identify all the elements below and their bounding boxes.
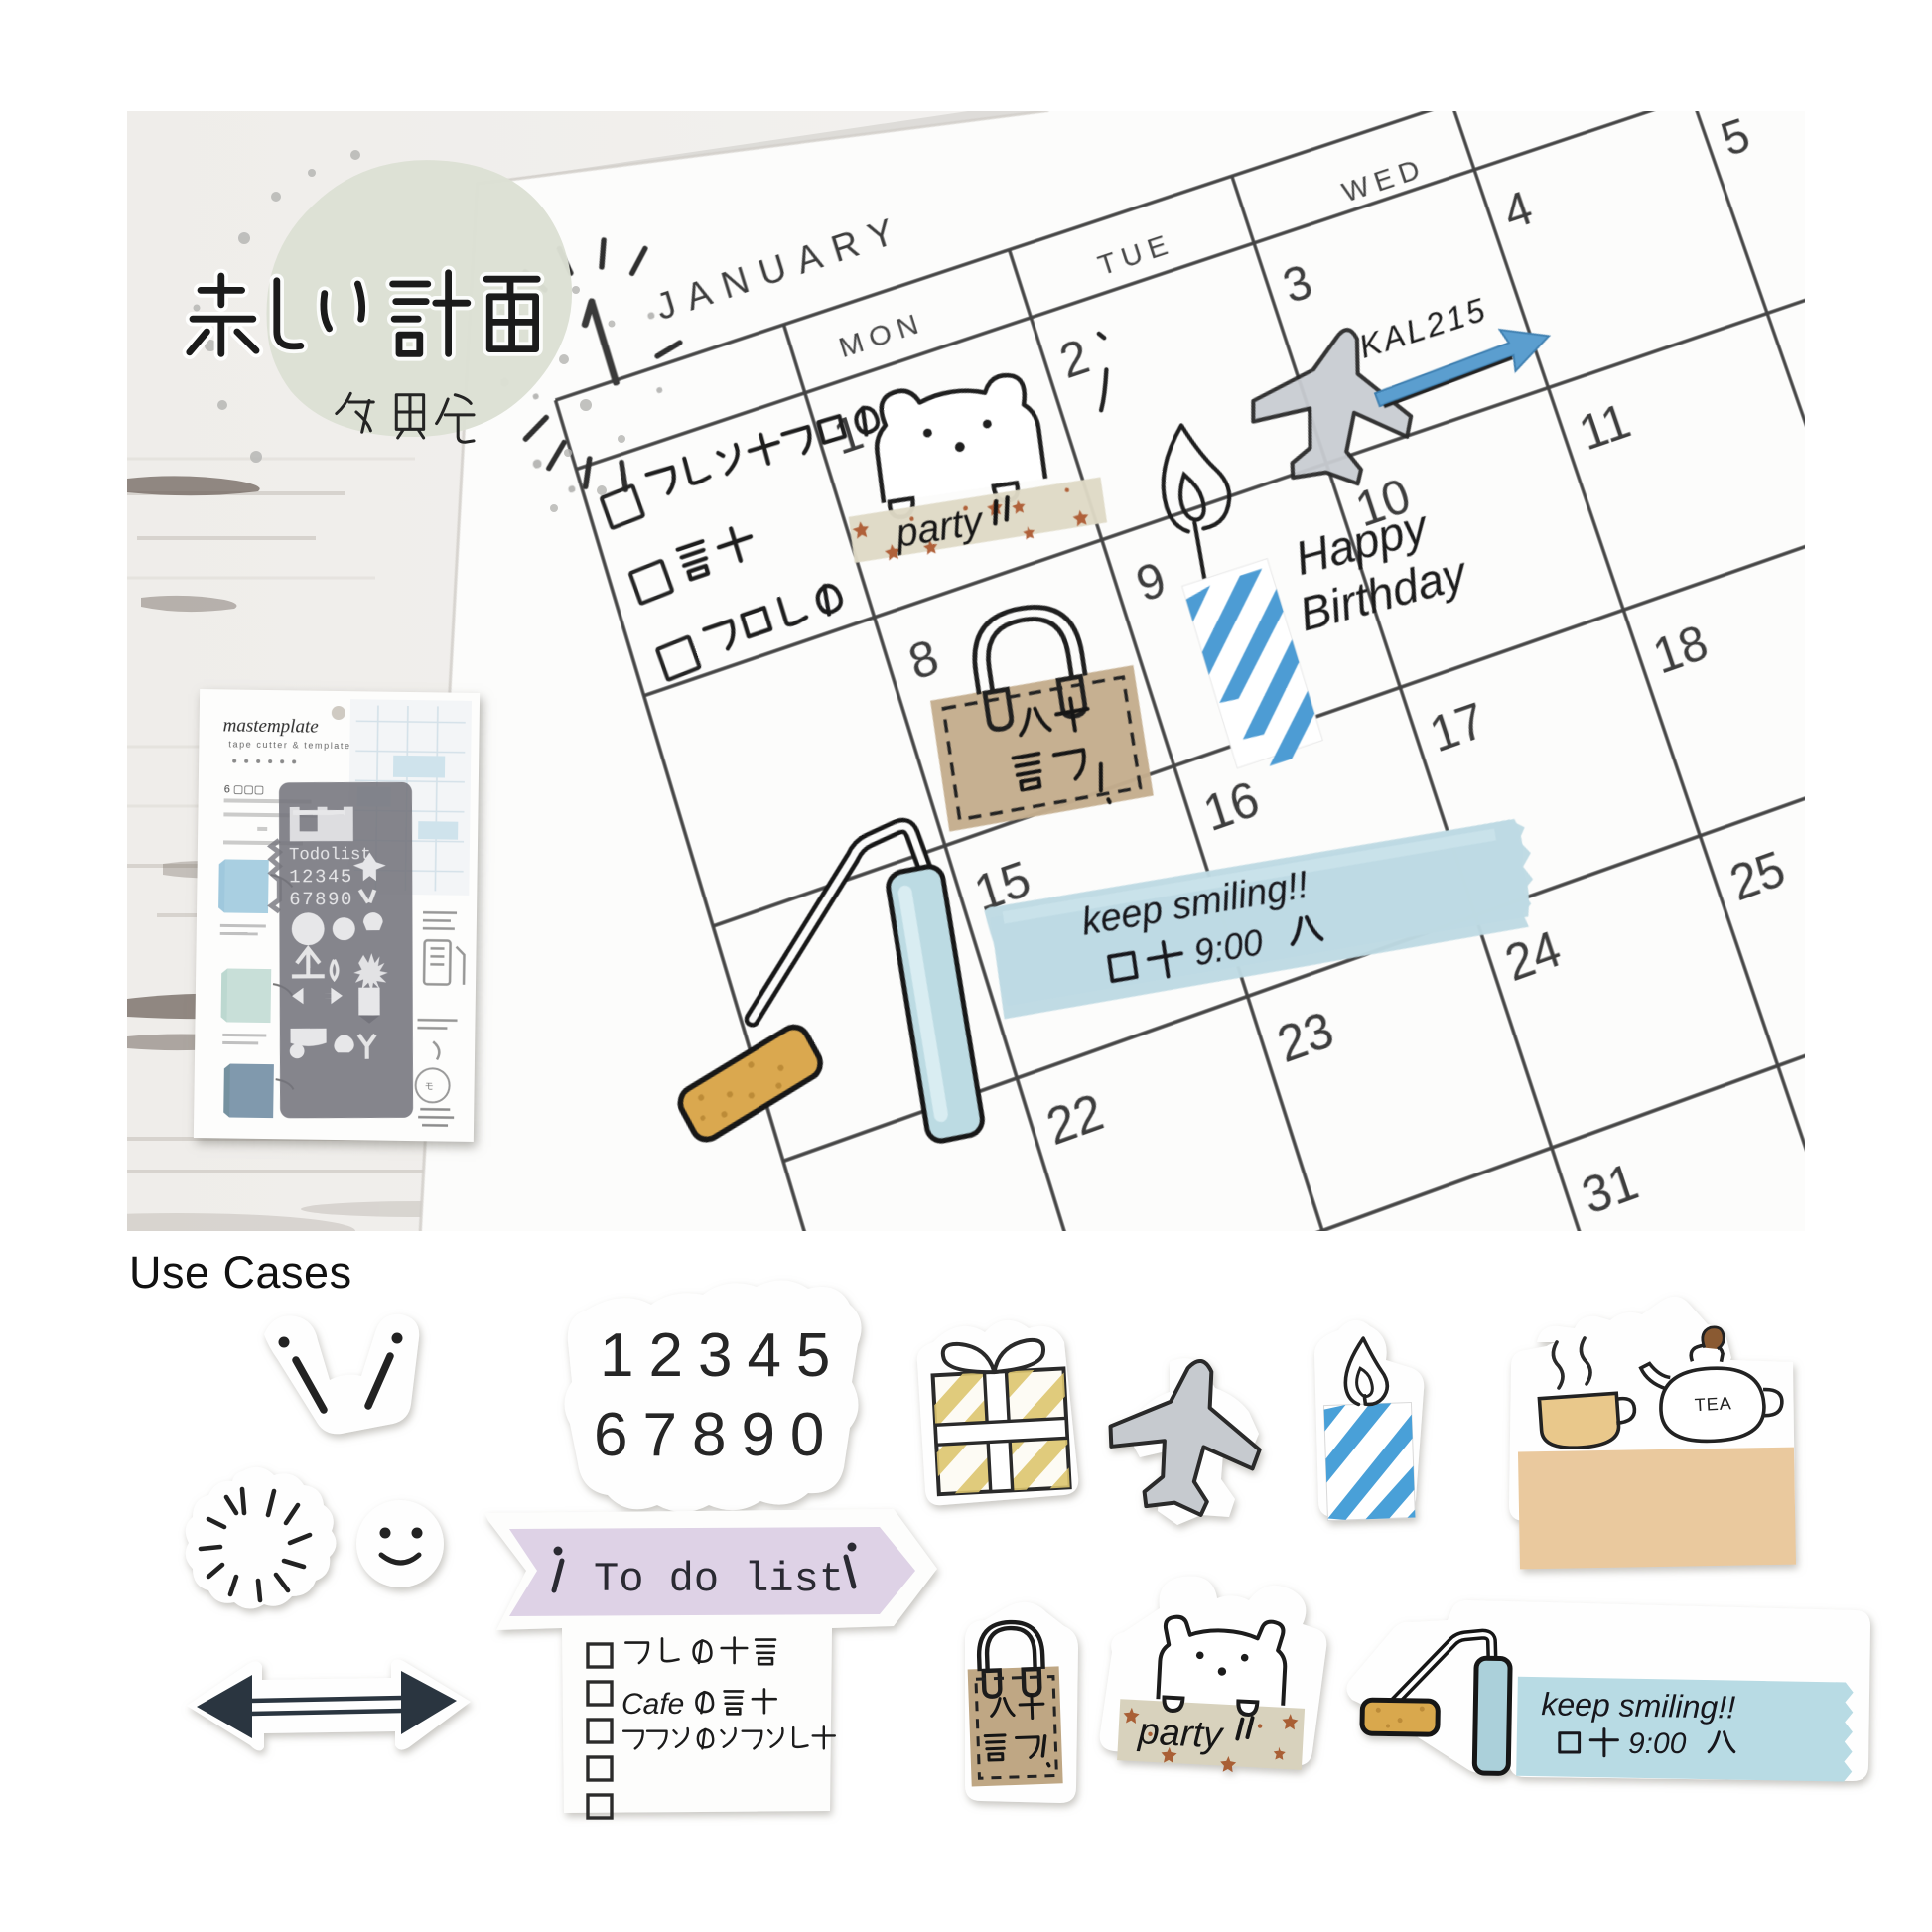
svg-text:Todolist: Todolist [289,846,371,865]
svg-text:Cafe: Cafe [621,1688,684,1721]
svg-text:12345: 12345 [289,866,353,888]
svg-text:mastemplate: mastemplate [223,715,319,737]
svg-text:6 ▢▢▢: 6 ▢▢▢ [224,783,265,796]
svg-text:tape cutter & template: tape cutter & template [228,739,350,751]
svg-text:9:00: 9:00 [1628,1727,1687,1760]
svg-text:67890: 67890 [289,889,353,910]
svg-text:モ: モ [425,1081,434,1091]
